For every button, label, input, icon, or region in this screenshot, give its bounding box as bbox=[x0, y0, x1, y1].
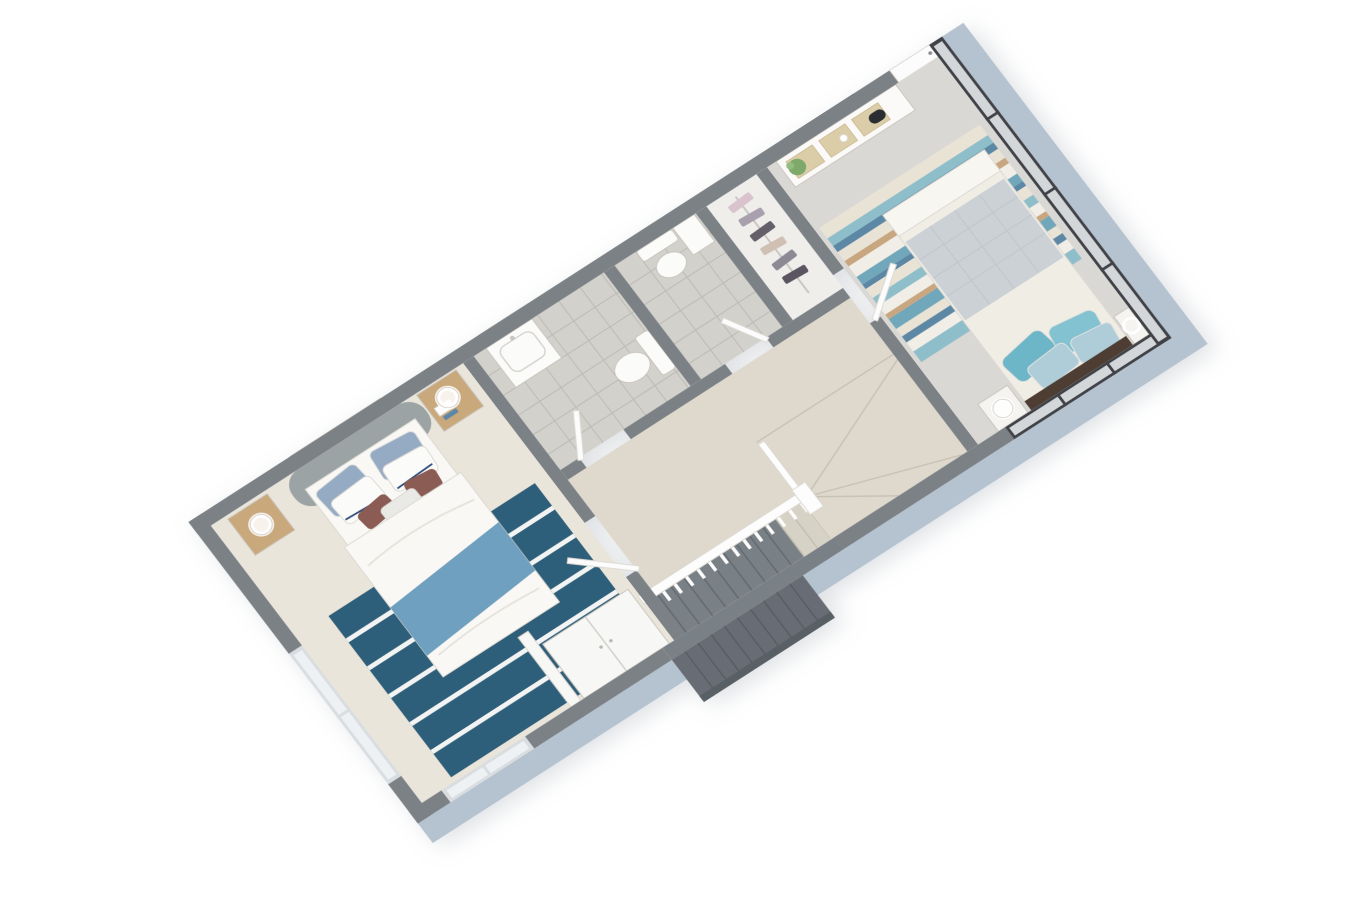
floor-plan-render bbox=[0, 0, 1349, 900]
floor-plan-canvas bbox=[0, 0, 1349, 900]
building bbox=[188, 23, 1224, 866]
